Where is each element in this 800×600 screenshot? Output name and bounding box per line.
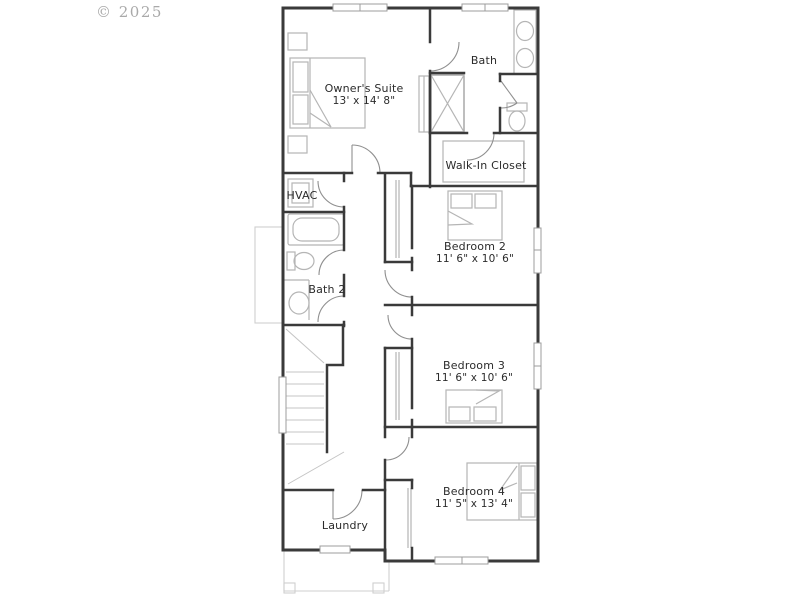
bathtub xyxy=(288,214,344,245)
room-label-bedroom-3: Bedroom 3 xyxy=(443,360,505,372)
window xyxy=(534,343,541,389)
bedroom3-bed xyxy=(446,390,502,423)
pillow xyxy=(475,194,496,208)
room-label-bedroom-2: Bedroom 2 xyxy=(444,241,506,253)
room-label-hvac: HVAC xyxy=(287,190,318,202)
sink xyxy=(517,49,534,68)
laundry-door xyxy=(333,490,362,519)
bed-fold xyxy=(448,211,472,225)
room-label-bath-2: Bath 2 xyxy=(308,284,345,296)
room-label-owners-suite: Owner's Suite xyxy=(325,83,404,95)
bedroom3-door xyxy=(388,315,412,339)
stair-break-line xyxy=(286,329,324,363)
pillow xyxy=(293,95,308,124)
owners-suite-mirror xyxy=(419,76,429,132)
walk-in-closet-door xyxy=(467,133,494,160)
room-dims-bedroom-2: 11' 6" x 10' 6" xyxy=(436,254,514,266)
stair-break-line xyxy=(288,452,344,484)
bedroom4-door xyxy=(386,437,409,460)
stair-guard-wall xyxy=(327,325,343,452)
floor-plan: © 2025 Owner's Suite 13' x 14' 8" Bath W… xyxy=(0,0,800,600)
room-dims-bedroom-4: 11' 5" x 13' 4" xyxy=(435,499,513,511)
water-closet-door xyxy=(501,81,517,103)
pillow xyxy=(451,194,472,208)
porch-outline xyxy=(255,227,389,593)
side-bay-outline xyxy=(255,227,283,323)
bedroom2-bed xyxy=(448,191,502,240)
room-label-bedroom-4: Bedroom 4 xyxy=(443,486,505,498)
double-vanity xyxy=(514,10,536,74)
toilet-water-closet xyxy=(507,103,527,131)
nightstand xyxy=(288,33,307,50)
bath2-door xyxy=(318,296,344,322)
owners-suite-door xyxy=(352,145,380,173)
pillow xyxy=(293,62,308,92)
window xyxy=(462,4,508,11)
bath2-compartment-door xyxy=(319,250,344,275)
pillow xyxy=(474,407,496,421)
room-dims-owners-suite: 13' x 14' 8" xyxy=(333,96,396,108)
room-dims-bedroom-3: 11' 6" x 10' 6" xyxy=(435,373,513,385)
bath-door xyxy=(430,42,459,71)
pillow xyxy=(449,407,470,421)
copyright-watermark: © 2025 xyxy=(96,3,163,21)
staircase xyxy=(286,325,344,484)
nightstand xyxy=(288,136,307,153)
window xyxy=(279,377,286,433)
sink-bath2 xyxy=(289,292,309,314)
bed-fold xyxy=(310,90,331,127)
bedroom2-door xyxy=(385,270,412,297)
bed-fold xyxy=(476,390,499,404)
sink xyxy=(517,22,534,41)
window xyxy=(435,557,488,564)
window xyxy=(534,228,541,273)
pillow xyxy=(521,466,535,490)
toilet-bath2 xyxy=(287,252,314,270)
shower xyxy=(431,75,464,132)
room-label-walk-in-closet: Walk-In Closet xyxy=(445,160,526,172)
room-label-bath: Bath xyxy=(471,55,497,67)
hvac-door xyxy=(318,181,344,207)
door-arcs xyxy=(318,42,517,519)
window xyxy=(320,546,350,553)
room-label-laundry: Laundry xyxy=(322,520,368,532)
window xyxy=(333,4,387,11)
pillow xyxy=(521,493,535,517)
